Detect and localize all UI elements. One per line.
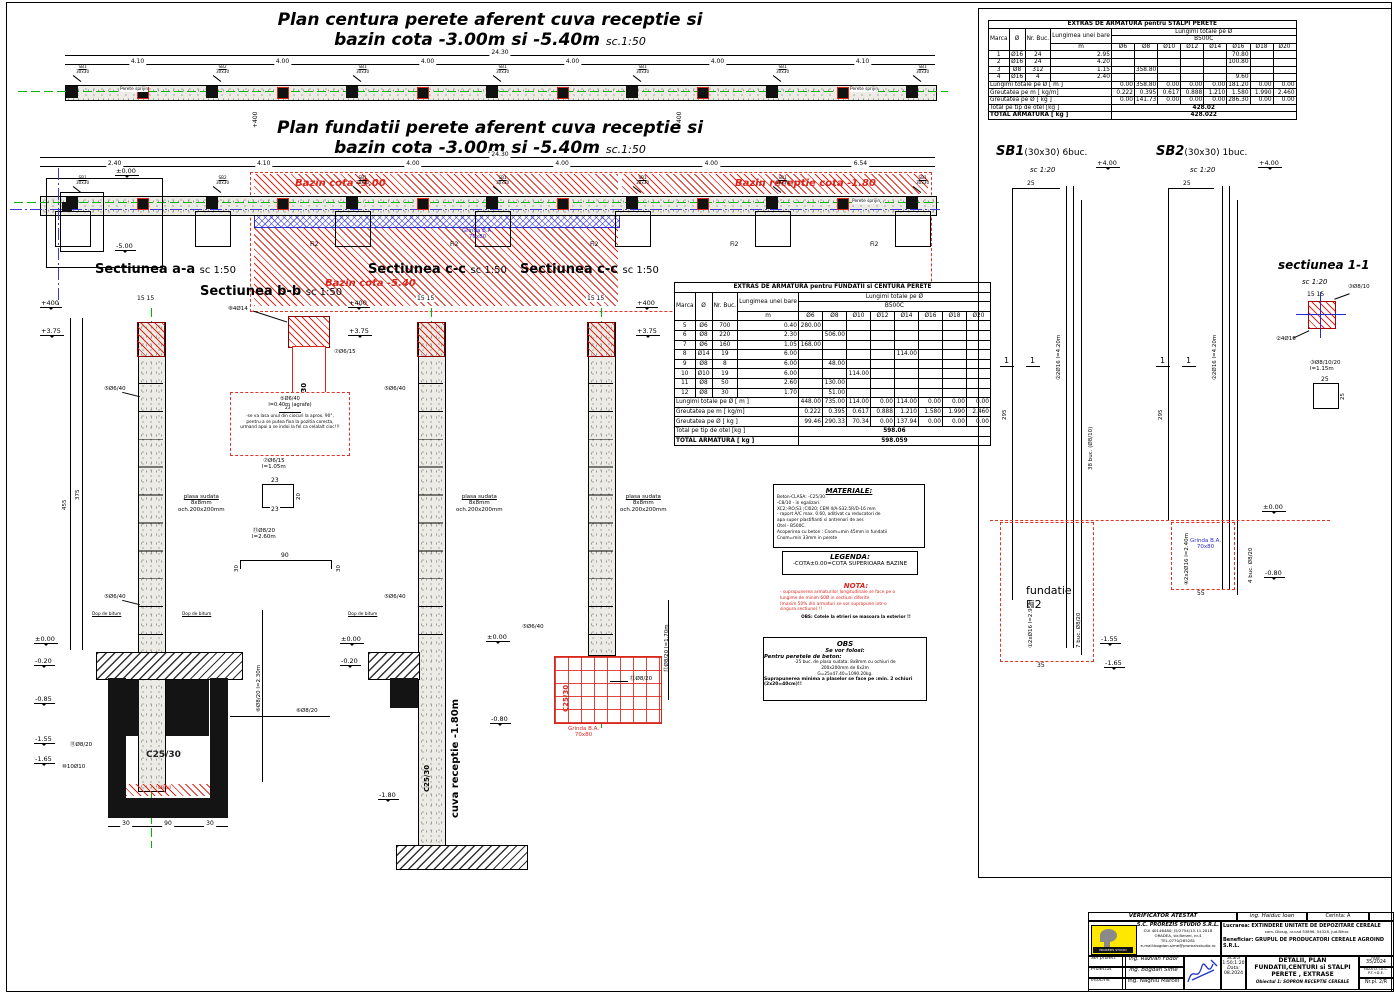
table-cell: 6.00 <box>738 350 799 360</box>
table-row: MarcaØNr. Buc.Lungimea unei bareLungimi … <box>675 292 991 302</box>
sec11-title: sectiunea 1-1 <box>1278 258 1369 272</box>
table-cell: Ø8 <box>695 359 712 369</box>
sb1-cut-label-l: 1 <box>1004 356 1009 365</box>
table-cell <box>1273 66 1296 74</box>
table-cell <box>942 330 966 340</box>
plansa-line1: DETALII, PLAN <box>1246 957 1359 964</box>
table-cell: 24 <box>1025 58 1051 66</box>
plan-column <box>486 197 498 209</box>
table-cell: 4 <box>989 74 1010 82</box>
table-cell: Total pe tip de otel [kg ] <box>989 104 1112 112</box>
tb-plansa-cell: DETALII, PLAN FUNDATII,CENTURI si STALPI… <box>1245 955 1360 990</box>
table-cell: 280.00 <box>798 321 822 331</box>
sb2-grinda-label: Grinda B.A.70x80 <box>1190 538 1221 551</box>
dim-value: 4.00 <box>703 160 720 167</box>
table-row: Greutatea pe m [ kg/m]0.2220.3950.6170.8… <box>989 89 1297 97</box>
table-cell: 1.05 <box>738 340 799 350</box>
table-row: Greutatea pe Ø [ kg ]0.00141.730.000.000… <box>989 96 1297 104</box>
table-row: 8Ø14196.00114.00 <box>675 350 991 360</box>
sb1-outline-h <box>1012 188 1060 189</box>
table-cell: Lungimi totale pe Ø <box>798 292 990 302</box>
table-cell: m <box>1051 43 1112 51</box>
table-cell: B500C <box>1111 36 1296 44</box>
table-cell <box>1273 51 1296 59</box>
fi2-label: Fi2 <box>870 241 879 248</box>
sb2-level-4: +4.00 <box>1258 160 1282 168</box>
plan-column <box>346 86 358 98</box>
table-cell: 1.210 <box>894 407 918 417</box>
table-cell <box>1227 66 1250 74</box>
table-cell: 0.395 <box>1134 89 1157 97</box>
seca-plasa-label: plasa sudata8x8mmoch.200x200mm <box>178 494 225 513</box>
table-cell: 181.20 <box>1227 81 1250 89</box>
table-cell <box>918 350 942 360</box>
obs-b2: (2x20=40cm)!! <box>764 682 926 687</box>
seca-dop-label-1: Dop de bitum <box>92 612 121 617</box>
seca-m11-label: ⑪Ø8/20 <box>70 742 92 748</box>
table-cell <box>798 369 822 379</box>
agrafe-note-lines: -se va lasa unul din ciocuri la aprox. 9… <box>231 414 349 431</box>
section-c1-title: Sectiunea c-c sc 1:50 <box>368 262 507 277</box>
seca-stirrup-ticks <box>139 356 163 646</box>
table-cell: Ø8 <box>695 388 712 398</box>
secc2-top-dim: 15 15 <box>586 295 605 302</box>
table-cell: 0.00 <box>1273 96 1296 104</box>
plan-column <box>906 86 918 98</box>
seca-bottom-dims: 309030 <box>108 826 228 827</box>
table-cell: 598.06 <box>798 426 990 436</box>
secc1-dop-label: Dop de bitum <box>348 612 377 617</box>
dim-value: 4.00 <box>419 58 436 65</box>
nota-block: NOTA: - suprapunerea armaturilor longitu… <box>780 582 932 619</box>
table-row: 7Ø61601.05168.00 <box>675 340 991 350</box>
company-info: S.C. PROREZIS STUDIO S.R.L. CUI 40146480… <box>1136 922 1220 948</box>
table-cell: 0.617 <box>1158 89 1181 97</box>
table-cell <box>1250 74 1273 82</box>
table-cell <box>1158 66 1181 74</box>
sb2-dim-25: 25 <box>1182 180 1192 187</box>
seca-found-right <box>210 678 228 800</box>
table-cell: 50 <box>712 378 738 388</box>
agrafe-note-box: ⑤Ø6/40l=0.40m (agrafe) 23 -se va lasa un… <box>230 392 350 456</box>
seca-m6v-label: ⑥Ø8/20 l=2.30m <box>256 665 262 712</box>
right-panel-border <box>978 8 1392 878</box>
table-cell: 137.94 <box>894 417 918 427</box>
tb-scara-cell: Scara 1:50;1:20 Data: 08.2024 <box>1220 955 1247 990</box>
table-cell <box>918 388 942 398</box>
table-cell <box>1181 51 1204 59</box>
plan-column <box>346 197 358 209</box>
table-cell: Total pe tip de otel [kg ] <box>675 426 799 436</box>
seca-found-left <box>108 678 126 800</box>
secc1-stirrup-ticks <box>419 356 443 646</box>
dim-value: 4.00 <box>564 58 581 65</box>
table-row: Greutatea pe Ø [ kg ]99.46290.3370.340.0… <box>675 417 991 427</box>
sb1-cut-line-r <box>1026 366 1040 367</box>
table-cell <box>894 359 918 369</box>
table-cell: Ø16 <box>1227 43 1250 51</box>
seca-level-155: -1.55 <box>34 736 55 744</box>
table-row: 9Ø886.0048.00 <box>675 359 991 369</box>
sb2-level-080: -0.80 <box>1264 570 1285 578</box>
table-cell: Ø14 <box>695 350 712 360</box>
secc2-centura-cap <box>587 322 615 357</box>
foundation-outline <box>755 211 791 247</box>
secc1-top-dim: 15 15 <box>416 295 435 302</box>
company-logo: PROREZIS STUDIO <box>1091 925 1137 955</box>
table-cell: 735.00 <box>822 398 846 408</box>
sb1-cut-line-l <box>1000 366 1014 367</box>
table-cell: 114.00 <box>894 350 918 360</box>
m7-dim-bottom: 23 <box>270 506 280 513</box>
table-cell: 358.80 <box>1134 81 1157 89</box>
secc2-m12-label: ⑫Ø8/20 <box>630 676 652 682</box>
table-cell: 114.00 <box>846 369 870 379</box>
table-cell: Lungimea unei bare <box>738 292 799 311</box>
secc2-level-400: +400 <box>636 300 658 308</box>
section-a-title: Sectiunea a-a sc 1:50 <box>95 262 236 277</box>
table-cell: 114.00 <box>846 398 870 408</box>
seca-level-020: -0.20 <box>34 658 55 666</box>
plan1-perete-label-left: Perete sprijin <box>120 87 148 92</box>
table-cell <box>822 350 846 360</box>
table-row: 5Ø67000.40280.00 <box>675 321 991 331</box>
secc1-c2530-label: C25/30 <box>423 765 431 792</box>
table-cell <box>1134 58 1157 66</box>
plan2-bazin300-label: Bazin cota -3.00 <box>295 178 386 190</box>
plan2-bazinrec-label: Bazin receptie cota -1.80 <box>735 178 876 190</box>
table-cell: 2.95 <box>1051 51 1112 59</box>
table-cell: 0.00 <box>870 417 894 427</box>
table-cell: Lungimea unei bare <box>1051 28 1112 43</box>
table-cell: EXTRAS DE ARMATURA pentru FUNDATII si CE… <box>675 283 991 293</box>
table-cell: 19 <box>712 369 738 379</box>
table-row: TOTAL ARMATURA [ kg ]598.059 <box>675 436 991 446</box>
sec11-m3-label: ③Ø8/10 <box>1348 284 1370 290</box>
table-cell: 0.00 <box>918 417 942 427</box>
plan2-segment-dims: 2.404.104.004.004.006.54 <box>40 166 935 167</box>
table-cell <box>942 350 966 360</box>
sb2-dim-55: 55 <box>1196 590 1206 597</box>
table-cell <box>1134 74 1157 82</box>
table-cell: Ø8 <box>822 311 846 321</box>
plan-intermediate-column <box>277 198 289 210</box>
table-cell <box>1111 51 1134 59</box>
sb2-grinda-box <box>1171 522 1235 590</box>
table-cell: 220 <box>712 330 738 340</box>
table-cell: Ø20 <box>1273 43 1296 51</box>
table-cell: 0.40 <box>738 321 799 331</box>
table-cell: Greutatea pe m [ kg/m] <box>675 407 799 417</box>
plan-column <box>206 197 218 209</box>
table-row: 12Ø8301.7051.00 <box>675 388 991 398</box>
table-cell: 19 <box>712 350 738 360</box>
obs-lines: -25 buc. de plasa sudata. 8x8mm cu ochiu… <box>764 660 926 677</box>
sec11-stirrup-sketch <box>1313 383 1339 409</box>
table-cell: 2 <box>989 58 1010 66</box>
table-cell: Ø16 <box>918 311 942 321</box>
foundation-outline <box>335 211 371 247</box>
table-cell <box>1158 51 1181 59</box>
table-cell: 0.00 <box>1273 81 1296 89</box>
secc2-m12v-label: ⑫Ø8/20 l=1.70m <box>662 624 670 672</box>
table-row: 2Ø16244.20100.80 <box>989 58 1297 66</box>
table-cell: 70.34 <box>846 417 870 427</box>
sb1-level-155: -1.55 <box>1100 636 1121 644</box>
sb2-mark2-label: ②2Ø16 l=4.20m <box>1212 335 1218 380</box>
obiect-line: Obiectul 1: SOPRON RECEPTIE CEREALE <box>1246 979 1359 984</box>
table-cell <box>1250 58 1273 66</box>
dim-value: 4.10 <box>129 58 146 65</box>
table-cell: 3 <box>989 66 1010 74</box>
sb2-outline-v <box>1168 188 1169 520</box>
seca-centura-cap <box>137 322 165 357</box>
table-cell <box>798 388 822 398</box>
table-cell: 286.30 <box>1227 96 1250 104</box>
table-cell: TOTAL ARMATURA [ kg ] <box>989 112 1112 120</box>
table-cell: 0.222 <box>798 407 822 417</box>
table-cell: 8 <box>712 359 738 369</box>
table-cell <box>942 321 966 331</box>
table-cell: m <box>738 311 799 321</box>
tb-role-3: Intocmit <box>1088 977 1126 990</box>
seca-m6-label: ⑥Ø8/20 <box>296 708 318 714</box>
table-cell <box>942 340 966 350</box>
table-cell: Marca <box>675 292 696 321</box>
plan-column <box>206 86 218 98</box>
table-row: EXTRAS DE ARMATURA pentru FUNDATII si CE… <box>675 283 991 293</box>
table-cell: 0.00 <box>1111 81 1134 89</box>
m7-sketch-title: ⑦Ø6/15l=1.05m <box>262 458 286 471</box>
table-cell: 0.222 <box>1111 89 1134 97</box>
dim-value: 4.00 <box>553 160 570 167</box>
secc1-slab-hatch <box>368 652 420 680</box>
plan-intermediate-column <box>417 198 429 210</box>
secc1-mark5-label-2: ⑤Ø6/40 <box>384 594 406 600</box>
sb2-cut-label-r: 1 <box>1186 356 1191 365</box>
signature-scribble <box>1184 956 1221 989</box>
secc1-centura-cap <box>417 322 445 357</box>
seca-fill-right <box>166 680 209 736</box>
table-cell: Ø16 <box>1009 74 1025 82</box>
secc1-level-0: ±0.00 <box>340 636 364 644</box>
table-cell: Ø8 <box>695 378 712 388</box>
sb1-mark2-label: ②2Ø16 l=4.20m <box>1056 335 1062 380</box>
table-cell: 6 <box>675 330 696 340</box>
table-cell: Ø18 <box>942 311 966 321</box>
table-cell: Ø10 <box>695 369 712 379</box>
table-cell: 1.580 <box>1227 89 1250 97</box>
secc2-level-0: ±0.00 <box>486 634 510 642</box>
dim-value: 4.10 <box>255 160 272 167</box>
plan-column <box>486 86 498 98</box>
table-cell: TOTAL ARMATURA [ kg ] <box>675 436 799 446</box>
table-cell <box>942 388 966 398</box>
table-cell <box>1134 51 1157 59</box>
table-cell: 11 <box>675 378 696 388</box>
sb1-stirrups1-label: 7 buc. Ø8/20 <box>1076 613 1082 648</box>
m11-sketch-hook-l <box>240 560 241 569</box>
data-value: 08.2024 <box>1221 971 1246 976</box>
plan-column-label: SB130x30 <box>916 175 929 185</box>
table-cell <box>870 388 894 398</box>
sb1-level-165: -1.65 <box>1104 660 1125 668</box>
table-cell: 0.00 <box>1181 96 1204 104</box>
table-cell: 130.00 <box>822 378 846 388</box>
plan-column <box>766 86 778 98</box>
table-cell: 1.990 <box>1250 89 1273 97</box>
table-row: 1Ø16242.9570.80 <box>989 51 1297 59</box>
table-cell <box>918 340 942 350</box>
dim-value: 2.40 <box>106 160 123 167</box>
table-cell: Lungimi totale pe Ø [ m ] <box>989 81 1112 89</box>
table-cell: 0.00 <box>942 417 966 427</box>
obs-title: OBS <box>764 640 926 648</box>
table-cell: 0.00 <box>870 398 894 408</box>
table-cell: Greutatea pe Ø [ kg ] <box>989 96 1112 104</box>
table-cell <box>870 340 894 350</box>
table-cell: 1 <box>989 51 1010 59</box>
table-cell: Ø16 <box>1009 51 1025 59</box>
tb-signature-cell <box>1183 955 1222 990</box>
seca-found-bottom <box>108 798 228 818</box>
plan-column-label: SB230x30 <box>216 175 229 185</box>
plan1-perete-label-right: Perete sprijin <box>850 87 878 92</box>
table-cell <box>822 321 846 331</box>
dim-value: 4.00 <box>274 58 291 65</box>
seca-level-400: +400 <box>40 300 62 308</box>
table-cell: Marca <box>989 28 1010 51</box>
seca-fill-left <box>126 680 139 736</box>
table-cell <box>918 378 942 388</box>
table-cell: Ø10 <box>846 311 870 321</box>
plan1-title-line2: bazin cota -3.00m si -5.40m sc.1:50 <box>200 30 780 50</box>
plan-column-label: SB130x30 <box>636 64 649 74</box>
table-cell: 9.60 <box>1227 74 1250 82</box>
plan1-wall-band <box>65 85 937 101</box>
plan-column <box>66 86 78 98</box>
table-cell: B500C <box>798 302 990 312</box>
table-cell <box>846 350 870 360</box>
secc2-level-375: +3.75 <box>636 328 660 336</box>
table-cell: 114.00 <box>894 398 918 408</box>
seca-level-375: +3.75 <box>40 328 64 336</box>
table-cell <box>894 321 918 331</box>
secb-centura-cap <box>288 316 330 348</box>
sec11-axis-v <box>1320 292 1321 338</box>
table-stalpi-perete: EXTRAS DE ARMATURA pentru STALPI PERETEM… <box>988 20 1297 120</box>
fi2-label: Fi2 <box>590 241 599 248</box>
secc2-level-080: -0.80 <box>490 716 511 724</box>
table-cell: Greutatea pe Ø [ kg ] <box>675 417 799 427</box>
extras-table: EXTRAS DE ARMATURA pentru FUNDATII si CE… <box>674 282 991 446</box>
table-cell <box>894 369 918 379</box>
table-cell <box>870 350 894 360</box>
plan2-title-line1: Plan fundatii perete aferent cuva recept… <box>200 118 780 138</box>
table-cell: 0.00 <box>1181 81 1204 89</box>
table-cell <box>1111 74 1134 82</box>
seca-dim-375: 375 <box>75 490 81 501</box>
table-cell: Nr. Buc. <box>712 292 738 321</box>
table-cell <box>846 330 870 340</box>
table-cell <box>918 330 942 340</box>
table-cell <box>870 369 894 379</box>
plan-column <box>766 197 778 209</box>
table-cell <box>798 378 822 388</box>
table-cell <box>846 321 870 331</box>
secc1-plasa-label: plasa sudata8x8mmoch.200x200mm <box>456 494 503 513</box>
m11-dim-30l: 30 <box>234 565 240 572</box>
foundation-outline <box>895 211 931 247</box>
section-b-title: Sectiunea b-b sc 1:50 <box>200 284 342 299</box>
table-cell: 0.00 <box>1158 96 1181 104</box>
table-cell: 48.00 <box>822 359 846 369</box>
seca-c810-label: C8/10 <box>158 786 171 791</box>
m11-sketch-bar <box>240 560 332 561</box>
table-cell: Lungimi totale pe Ø <box>1111 28 1296 36</box>
plan-column-label: SB130x30 <box>356 175 369 185</box>
m11-sketch-hook-r <box>331 560 332 569</box>
sb1-mark1-label: ①2xØ16 l=2.95m <box>1028 599 1034 648</box>
table-cell <box>1273 74 1296 82</box>
plan-column-label: SB130x30 <box>356 64 369 74</box>
table-row: 11Ø8502.60130.00 <box>675 378 991 388</box>
plan-column-label: SB130x30 <box>916 64 929 74</box>
table-cell: 2.40 <box>1051 74 1112 82</box>
secc2-stirrup-ticks <box>589 356 613 646</box>
table-cell: 5 <box>675 321 696 331</box>
seca-level-165: -1.65 <box>34 756 55 764</box>
table-cell: 448.00 <box>798 398 822 408</box>
table-cell: 7 <box>675 340 696 350</box>
table-cell: 700 <box>712 321 738 331</box>
nota-title: NOTA: <box>780 582 932 590</box>
plan-intermediate-column <box>557 198 569 210</box>
plan-intermediate-column <box>697 87 709 99</box>
table-cell: 1.210 <box>1204 89 1227 97</box>
table-cell: 506.00 <box>822 330 846 340</box>
company-email: e-mail:bogdan.sime@prorezisstudio.ro <box>1136 943 1220 948</box>
sec11-m3v-label: ③Ø8/10/20l=1.15m <box>1310 360 1340 373</box>
table-cell <box>1181 66 1204 74</box>
plan-intermediate-column <box>557 87 569 99</box>
table-cell <box>870 330 894 340</box>
table-cell <box>1250 66 1273 74</box>
table-cell: 6.00 <box>738 359 799 369</box>
seca-top-dim: 15 15 <box>136 295 155 302</box>
foundation-outline <box>195 211 231 247</box>
table-cell: Ø18 <box>1250 43 1273 51</box>
table-row: 6Ø82202.30506.00 <box>675 330 991 340</box>
table-cell <box>918 369 942 379</box>
table-cell: EXTRAS DE ARMATURA pentru STALPI PERETE <box>989 21 1297 29</box>
table-cell <box>798 350 822 360</box>
table-cell <box>846 378 870 388</box>
seca-dimline-2 <box>82 318 83 650</box>
table-cell: 1.70 <box>738 388 799 398</box>
extras-table: EXTRAS DE ARMATURA pentru STALPI PERETEM… <box>988 20 1297 120</box>
table-cell: Ø10 <box>1158 43 1181 51</box>
table-cell: 24 <box>1025 51 1051 59</box>
secc1-mark5-label-1: ⑤Ø6/40 <box>384 386 406 392</box>
sec11-stirrup-dim-top: 25 <box>1320 376 1330 383</box>
plan1-total-dim-line: 24.30 <box>65 55 935 56</box>
sb1-cut-label-r: 1 <box>1030 356 1035 365</box>
table-row: MarcaØNr. Buc.Lungimea unei bareLungimi … <box>989 28 1297 36</box>
table-cell: 9 <box>675 359 696 369</box>
plan2-perete-label: Perete sprijin <box>852 199 880 204</box>
plan-intermediate-column <box>277 87 289 99</box>
